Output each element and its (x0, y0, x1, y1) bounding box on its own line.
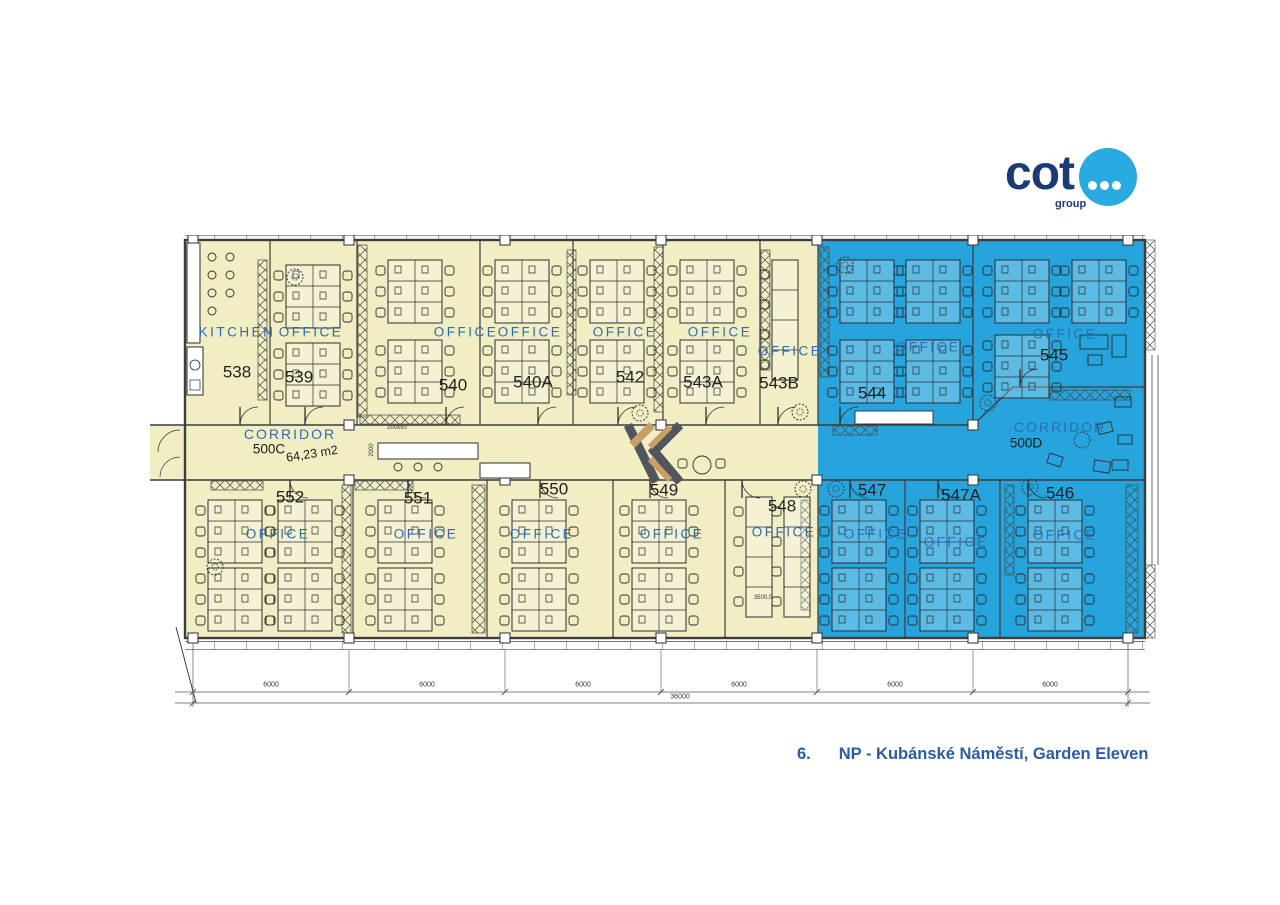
logo-brand-text: cot (1005, 150, 1074, 198)
dim-segment-4: 6000 (731, 682, 747, 689)
room-543a-number: 543A (683, 374, 723, 391)
logo-dots-icon (1079, 148, 1137, 206)
corridor-right-number: 500D (1010, 436, 1042, 450)
room-547a-type: OFFICE (924, 535, 989, 549)
room-550-number: 550 (540, 481, 568, 498)
room-552-number: 552 (276, 489, 304, 506)
logo-sub-text: group (1055, 198, 1086, 210)
room-540a-number: 540A (513, 374, 553, 391)
dim-segment-5: 6000 (887, 682, 903, 689)
dim-total: 36000 (670, 694, 689, 701)
room-538-type: KITCHEN (199, 325, 276, 339)
room-551-type: OFFICE (394, 527, 459, 541)
room-548-type: OFFICE (752, 525, 817, 539)
room-548-number: 548 (768, 498, 796, 515)
room-549-type: OFFICE (640, 527, 705, 541)
dimension-lines (175, 643, 1150, 707)
room-542-type: OFFICE (593, 325, 658, 339)
room-547-type: OFFICE (844, 527, 909, 541)
room-550-type: OFFICE (510, 527, 575, 541)
room-540-type: OFFICE (434, 325, 499, 339)
floor-plan: KITCHEN 538 OFFICE 539 OFFICE 540 OFFICE… (150, 235, 1165, 720)
room-540-number: 540 (439, 377, 467, 394)
caption-text: NP - Kubánské Náměstí, Garden Eleven (839, 745, 1149, 763)
corridor-right-label: CORRIDOR (1014, 420, 1106, 434)
annotation-table-dim: 200x50 (387, 425, 407, 431)
floor-plan-drawing (150, 235, 1165, 720)
room-545-type: OFFICE (1033, 327, 1098, 341)
drawing-caption: 6.NP - Kubánské Náměstí, Garden Eleven (797, 745, 1148, 764)
room-545-number: 545 (1040, 347, 1068, 364)
dim-segment-2: 6000 (419, 682, 435, 689)
room-540a-type: OFFICE (498, 325, 563, 339)
room-547-number: 547 (858, 482, 886, 499)
room-551-number: 551 (404, 490, 432, 507)
corridor-cabinet (855, 411, 933, 424)
room-546-number: 546 (1046, 485, 1074, 502)
room-543b-number: 543B (759, 375, 799, 392)
room-539-type: OFFICE (279, 325, 344, 339)
room-542-number: 542 (616, 369, 644, 386)
room-546-type: OFFICE (1033, 528, 1098, 542)
caption-index: 6. (797, 745, 811, 764)
page: cot group (0, 0, 1280, 905)
room-544-type: OFFICE (896, 340, 961, 354)
room-538-number: 538 (223, 364, 251, 381)
room-543b-type: OFFICE (758, 344, 823, 358)
cot-group-logo: cot group (1005, 148, 1145, 218)
annotation-room-dim: 3500,0 (754, 595, 772, 601)
reception-desk (480, 463, 530, 478)
room-543a-type: OFFICE (688, 325, 753, 339)
corridor-left-number: 500C (253, 442, 285, 456)
room-552-type: OFFICE (246, 527, 311, 541)
room-544-number: 544 (858, 385, 886, 402)
room-549-number: 549 (650, 482, 678, 499)
room-547a-number: 547A (941, 487, 981, 504)
annotation-corridor-width: 2000 (369, 443, 375, 456)
dim-segment-3: 6000 (575, 682, 591, 689)
room-539-number: 539 (285, 369, 313, 386)
dim-segment-6: 6000 (1042, 682, 1058, 689)
corridor-left-label: CORRIDOR (244, 427, 336, 441)
dim-segment-1: 6000 (263, 682, 279, 689)
